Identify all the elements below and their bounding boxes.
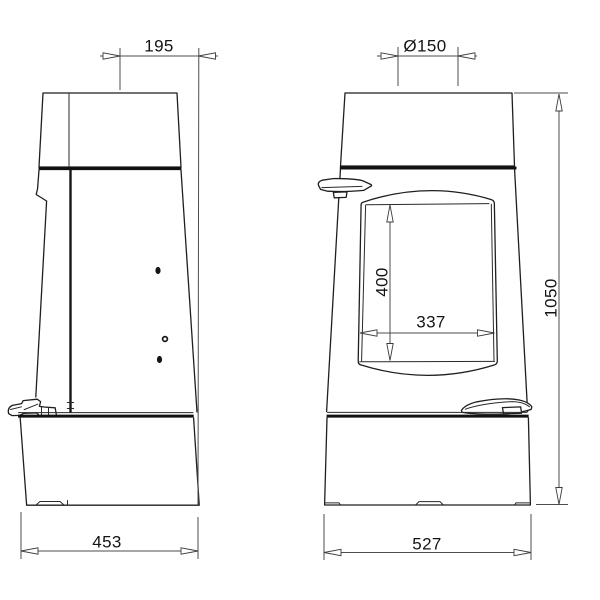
window-inner-top (366, 204, 489, 205)
front-top-panel (341, 93, 515, 166)
arrowhead (324, 549, 341, 555)
side-top-panel (39, 93, 181, 167)
front-base-notch (416, 502, 443, 505)
front-base (325, 418, 531, 505)
dimension-195-label: 195 (144, 38, 174, 55)
arrowhead (387, 344, 393, 361)
screw-dot (155, 267, 160, 274)
arrowhead (199, 53, 216, 59)
front-right-edge (515, 170, 528, 412)
latch-lever (318, 179, 371, 192)
door-latch (318, 179, 371, 198)
arrowhead (21, 548, 38, 554)
side-base-notch (36, 502, 64, 506)
side-base (20, 418, 199, 505)
drawing-canvas (0, 0, 600, 600)
window-inner-left (362, 205, 366, 361)
dimension-453-label: 453 (92, 534, 122, 551)
arrowhead (387, 205, 393, 222)
arrowhead (478, 330, 495, 336)
dimension-400-label: 400 (374, 267, 391, 297)
front-left-edge (327, 170, 341, 412)
arrowhead (103, 53, 120, 59)
window-inner-right (491, 204, 494, 360)
front-face-extension (198, 48, 199, 559)
arrowhead (514, 549, 531, 555)
front-view (318, 93, 532, 505)
arrowhead (458, 53, 475, 59)
arrowhead (181, 548, 198, 554)
dimension-1050-label: 1050 (543, 278, 560, 317)
dimension-flue-diameter-label: Ø150 (403, 38, 446, 55)
arrowhead (556, 488, 562, 505)
screw-dot (157, 356, 162, 363)
technical-drawing-page: 195 Ø150 400 337 1050 453 527 (0, 0, 600, 600)
latch-tab (333, 192, 347, 198)
side-left-profile (36, 170, 47, 397)
side-control-handle (8, 399, 56, 417)
dimensions (21, 47, 568, 560)
dimension-337-label: 337 (416, 314, 446, 331)
arrowhead (556, 94, 562, 111)
side-right-profile (181, 170, 197, 412)
arrowhead (381, 53, 398, 59)
screw-ring (163, 337, 168, 342)
side-view (8, 93, 199, 505)
dimension-195 (100, 48, 218, 559)
dimension-527-label: 527 (412, 536, 442, 553)
air-control-lever (461, 399, 531, 414)
